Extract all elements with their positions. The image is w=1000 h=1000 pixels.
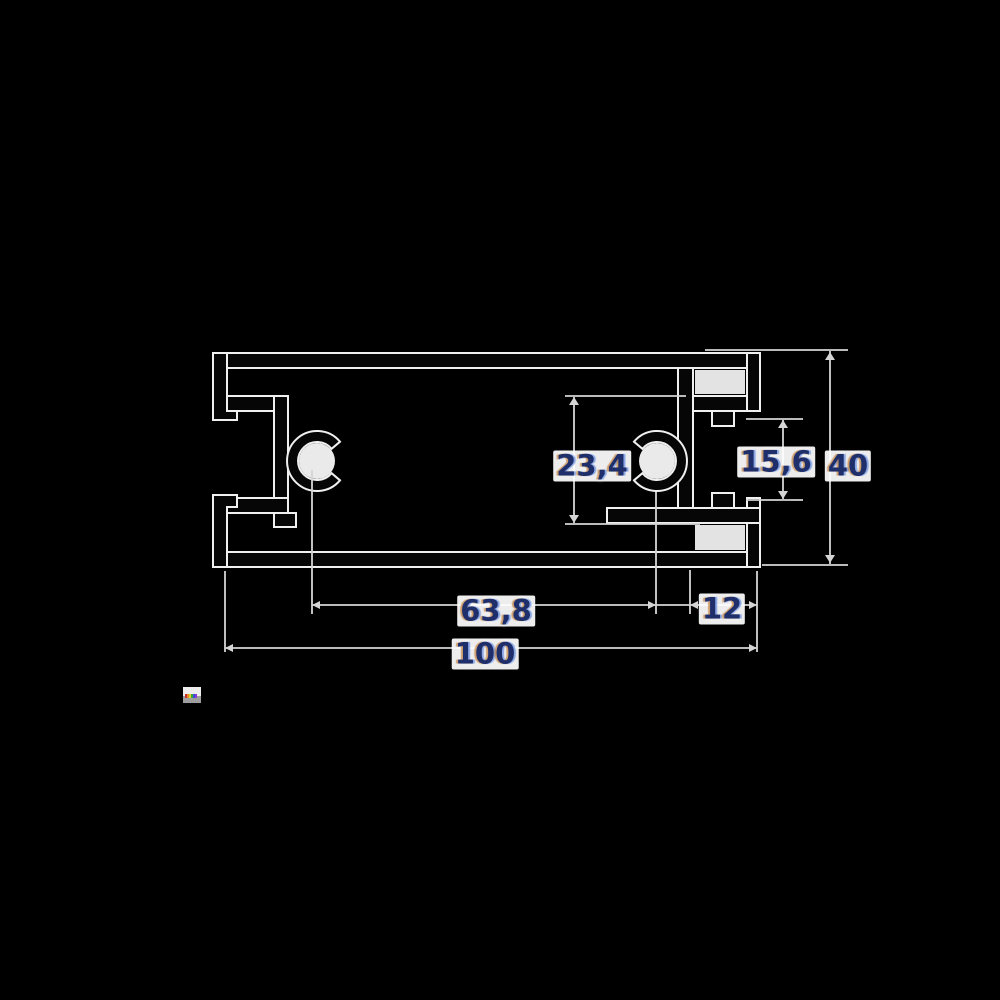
arrow [778,420,788,428]
right-bottom-shelf [607,508,760,523]
left-boss-bore [299,443,335,479]
arrow [569,397,579,405]
dim-label-right-channel-depth: 12 [699,594,745,625]
arrow [312,601,320,609]
arrow [225,644,233,652]
arrow [778,491,788,499]
arrow [690,601,698,609]
dim-label-boss-center-distance: 63,8 [457,596,535,627]
dim-label-channel-outer-height: 23,4 [553,451,631,482]
right-mouth-upper-nub [712,411,734,426]
arrow [825,352,835,360]
dim-label-total-height: 40 [825,451,871,482]
artifact-color-strip [185,694,197,698]
right-lower-cavity [695,525,745,550]
image-artifact [183,687,201,703]
bottom-wall [213,552,760,567]
technical-drawing-canvas: 23,4 15,6 40 63,8 12 100 [0,0,1000,1000]
dim-label-mouth-opening-height: 15,6 [737,447,815,478]
right-boss-bore [639,443,675,479]
right-upper-lip [747,353,760,411]
top-wall [213,353,760,368]
arrow [648,601,656,609]
left-step-foot [274,513,296,527]
right-mouth-lower-nub [712,493,734,508]
left-inner-wall [274,396,288,513]
dim-label-total-width: 100 [452,639,519,670]
arrow [749,601,757,609]
arrow [569,515,579,523]
profile-walls [213,353,760,567]
arrow [825,555,835,563]
right-upper-cavity [695,370,745,394]
profile-drawing [0,0,1000,1000]
arrow [749,644,757,652]
